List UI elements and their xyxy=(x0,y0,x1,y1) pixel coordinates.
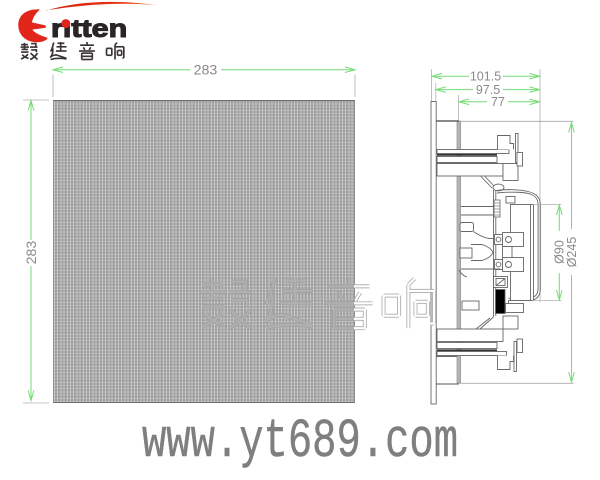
svg-text:101.5: 101.5 xyxy=(470,70,501,84)
svg-text:283: 283 xyxy=(194,62,218,78)
svg-text:77: 77 xyxy=(491,95,505,109)
svg-text:Ø245: Ø245 xyxy=(565,237,579,268)
svg-text:283: 283 xyxy=(24,241,40,265)
